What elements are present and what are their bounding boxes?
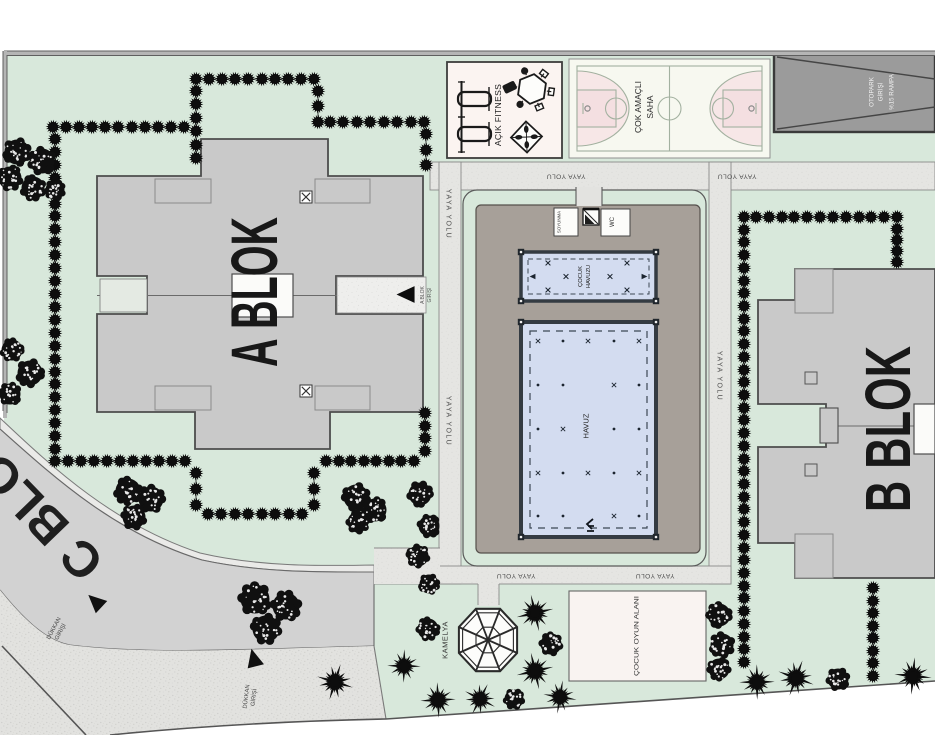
svg-text:YAYA YOLU: YAYA YOLU	[635, 572, 674, 579]
svg-text:WC: WC	[610, 216, 616, 227]
svg-text:AÇIK FITNESS: AÇIK FITNESS	[493, 84, 503, 146]
svg-text:SAHA: SAHA	[645, 95, 655, 118]
svg-text:ÇOK AMAÇLI: ÇOK AMAÇLI	[633, 81, 643, 133]
svg-text:YAYA YOLU: YAYA YOLU	[546, 173, 585, 180]
svg-text:HAVUZU: HAVUZU	[586, 265, 592, 288]
svg-text:%15 RAMPA: %15 RAMPA	[889, 73, 896, 110]
svg-text:YAYA YOLU: YAYA YOLU	[445, 189, 452, 239]
svg-text:ÇOCUK OYUN ALANI: ÇOCUK OYUN ALANI	[634, 596, 641, 676]
svg-text:SOYUNMA: SOYUNMA	[557, 211, 562, 233]
svg-text:ÇOCUK: ÇOCUK	[578, 266, 584, 287]
svg-text:HAVUZ: HAVUZ	[582, 413, 591, 438]
svg-text:GİRİŞİ: GİRİŞİ	[878, 82, 885, 101]
svg-text:YAYA YOLU: YAYA YOLU	[496, 572, 535, 579]
svg-text:B BLOK: B BLOK	[852, 346, 924, 512]
svg-text:A BLOK: A BLOK	[420, 285, 426, 303]
svg-text:YAYA YOLU: YAYA YOLU	[717, 173, 756, 180]
svg-text:A BLOK: A BLOK	[217, 217, 291, 367]
svg-text:GİRİŞİ: GİRİŞİ	[426, 287, 433, 302]
svg-text:KAMELYA: KAMELYA	[441, 621, 450, 659]
svg-text:YAYA YOLU: YAYA YOLU	[445, 396, 452, 446]
svg-text:OTOPARK: OTOPARK	[869, 76, 876, 107]
svg-text:YAYA YOLU: YAYA YOLU	[716, 351, 723, 401]
